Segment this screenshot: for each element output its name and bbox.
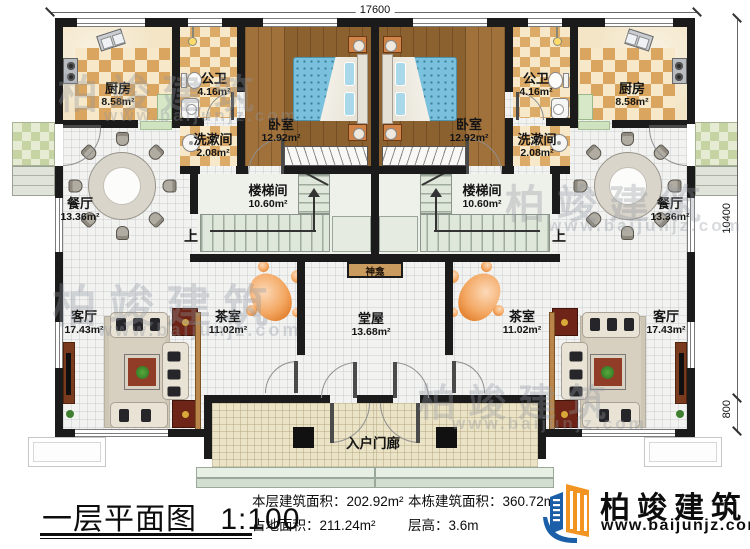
divider-screen bbox=[195, 312, 201, 430]
dining-chair bbox=[668, 180, 682, 193]
lamp-icon bbox=[385, 128, 397, 140]
wall bbox=[375, 27, 379, 262]
lamp-icon bbox=[353, 128, 365, 140]
porch-step bbox=[196, 467, 375, 478]
wall bbox=[297, 262, 305, 355]
dining-chair bbox=[574, 180, 588, 193]
window bbox=[687, 198, 695, 252]
toilet-icon bbox=[187, 72, 202, 89]
stair-landing bbox=[332, 216, 371, 252]
brand-website: www.baijunjz.com bbox=[601, 517, 750, 535]
door-opening bbox=[687, 124, 695, 166]
wall bbox=[375, 254, 560, 262]
wall bbox=[375, 395, 393, 403]
basin-bowl bbox=[553, 104, 564, 115]
cushion bbox=[168, 370, 181, 380]
wall bbox=[546, 118, 570, 126]
wall bbox=[237, 27, 245, 92]
nightstand bbox=[383, 124, 402, 141]
porch-step bbox=[196, 478, 375, 488]
stair-direction-line bbox=[313, 196, 315, 232]
burner-icon bbox=[67, 62, 75, 70]
plant-icon bbox=[676, 410, 684, 418]
pillow bbox=[395, 92, 406, 116]
door-leaf bbox=[452, 361, 456, 393]
pillow bbox=[344, 62, 355, 86]
dining-chair bbox=[622, 226, 635, 240]
cushion bbox=[119, 409, 129, 422]
wall bbox=[570, 27, 578, 128]
bath-valve-icon bbox=[188, 37, 197, 46]
tea-sculpture-dot bbox=[246, 305, 257, 316]
dining-chair bbox=[622, 132, 635, 146]
plan-title-text: 一层平面图 bbox=[42, 503, 197, 536]
brand-logo-icon bbox=[543, 481, 599, 543]
window bbox=[263, 18, 337, 27]
burner-icon bbox=[675, 73, 683, 81]
cushion bbox=[133, 318, 143, 331]
table-ornament bbox=[561, 319, 568, 326]
cushion bbox=[607, 318, 617, 331]
front-terrace bbox=[644, 437, 722, 467]
divider-screen bbox=[549, 312, 555, 430]
kitchen-rug bbox=[580, 48, 675, 120]
tea-sculpture-dot bbox=[493, 305, 504, 316]
dining-chair bbox=[162, 180, 176, 193]
kitchen-door-mat bbox=[578, 121, 610, 130]
sofa bbox=[561, 342, 588, 400]
wall bbox=[420, 395, 546, 403]
kitchen-appliance bbox=[578, 94, 593, 120]
door-leaf bbox=[330, 403, 334, 443]
tv-cabinet bbox=[675, 342, 687, 404]
plan-half bbox=[0, 0, 375, 490]
plant-icon bbox=[66, 410, 74, 418]
cushion bbox=[168, 387, 181, 397]
sofa bbox=[582, 312, 640, 338]
wall bbox=[357, 395, 375, 403]
plan-half-mirrored bbox=[375, 0, 750, 490]
front-terrace bbox=[28, 437, 106, 467]
dining-chair bbox=[116, 132, 129, 146]
stair-lower-flight bbox=[200, 214, 330, 252]
door-leaf bbox=[63, 125, 101, 128]
sofa bbox=[162, 342, 189, 400]
toilet-icon bbox=[548, 72, 563, 89]
door-opening bbox=[55, 124, 63, 166]
tv-icon bbox=[679, 353, 684, 395]
door-leaf bbox=[353, 362, 357, 398]
plant-icon bbox=[601, 366, 614, 379]
cushion bbox=[570, 352, 583, 362]
tea-sculpture-dot bbox=[258, 261, 269, 272]
cushion bbox=[168, 352, 181, 362]
stove-icon bbox=[63, 58, 78, 84]
table-ornament bbox=[561, 411, 568, 418]
wall bbox=[538, 395, 546, 459]
wall bbox=[550, 166, 570, 174]
side-steps bbox=[12, 166, 55, 196]
dining-table-top bbox=[103, 167, 141, 205]
pillow bbox=[395, 62, 406, 86]
porch-column bbox=[436, 427, 457, 448]
kitchen-door-mat bbox=[140, 121, 172, 130]
floor-plan-canvas: 厨房 8.58m² 厨房 8.58m² 公卫 4.16m² 公卫 4.16m² … bbox=[0, 0, 750, 549]
dining-chair bbox=[116, 226, 129, 240]
wash-basin-icon bbox=[182, 134, 200, 152]
stat-total-area: 本栋建筑面积：360.72m² bbox=[408, 490, 560, 510]
wall bbox=[190, 254, 375, 262]
window bbox=[55, 322, 63, 368]
end-table bbox=[552, 400, 578, 428]
kitchen-appliance bbox=[157, 94, 172, 120]
side-patio bbox=[12, 122, 55, 166]
cushion bbox=[590, 318, 600, 331]
door-leaf bbox=[231, 92, 234, 120]
table-ornament bbox=[182, 319, 189, 326]
nightstand bbox=[348, 36, 367, 53]
wash-basin-icon bbox=[550, 134, 568, 152]
tv-cabinet bbox=[63, 342, 75, 404]
plant-icon bbox=[136, 366, 149, 379]
sofa bbox=[110, 402, 168, 428]
cushion bbox=[624, 318, 634, 331]
window bbox=[75, 429, 168, 437]
window bbox=[528, 18, 562, 27]
wall bbox=[204, 395, 212, 459]
wall bbox=[236, 166, 248, 174]
window bbox=[605, 18, 673, 27]
basin-drain bbox=[557, 141, 561, 145]
nightstand bbox=[348, 124, 367, 141]
stove-icon bbox=[672, 58, 687, 84]
tea-sculpture-dot bbox=[481, 261, 492, 272]
stair-direction-line bbox=[434, 230, 540, 232]
basin-bowl bbox=[186, 104, 197, 115]
wall bbox=[445, 262, 453, 355]
wardrobe bbox=[284, 146, 368, 166]
tv-icon bbox=[66, 353, 71, 395]
porch-step bbox=[375, 467, 554, 478]
porch-step bbox=[375, 478, 554, 488]
stair-direction-line bbox=[435, 196, 437, 232]
stair-direction-line bbox=[210, 230, 316, 232]
end-table bbox=[552, 308, 578, 336]
wardrobe bbox=[382, 146, 466, 166]
window bbox=[413, 18, 487, 27]
dining-chair bbox=[68, 180, 82, 193]
cushion bbox=[570, 387, 583, 397]
stair-arrow-icon bbox=[308, 188, 320, 197]
coffee-table bbox=[591, 355, 625, 389]
wall bbox=[375, 166, 466, 174]
sofa bbox=[582, 402, 640, 428]
lamp-icon bbox=[353, 40, 365, 52]
stair-landing bbox=[379, 216, 418, 252]
stat-footprint-area: 占地面积：211.24m² bbox=[252, 514, 376, 534]
title-underline bbox=[40, 533, 252, 536]
window bbox=[687, 322, 695, 368]
wall bbox=[204, 395, 330, 403]
lamp-icon bbox=[385, 40, 397, 52]
pillow bbox=[344, 92, 355, 116]
cushion bbox=[141, 409, 151, 422]
basin-drain bbox=[189, 141, 193, 145]
bath-valve-icon bbox=[553, 37, 562, 46]
porch-column bbox=[293, 427, 314, 448]
title-underline-thin bbox=[40, 538, 252, 539]
table-ornament bbox=[182, 411, 189, 418]
side-patio bbox=[695, 122, 738, 166]
cushion bbox=[599, 409, 609, 422]
door-leaf bbox=[649, 125, 687, 128]
window bbox=[55, 198, 63, 252]
door-leaf bbox=[466, 138, 469, 174]
bath-basin-icon bbox=[551, 98, 569, 119]
nightstand bbox=[383, 36, 402, 53]
window bbox=[188, 18, 222, 27]
door-leaf bbox=[281, 138, 284, 174]
wall bbox=[190, 174, 198, 214]
door-leaf bbox=[393, 362, 397, 398]
cushion bbox=[150, 318, 160, 331]
dining-table-top bbox=[609, 167, 647, 205]
floor-plan bbox=[0, 0, 750, 490]
wall bbox=[284, 166, 375, 174]
sofa bbox=[110, 312, 168, 338]
coffee-table bbox=[125, 355, 159, 389]
bed-headboard bbox=[382, 54, 393, 124]
stair-arrow-icon bbox=[430, 188, 442, 197]
stat-floor-area: 本层建筑面积：202.92m² bbox=[252, 490, 404, 510]
side-steps bbox=[695, 166, 738, 196]
bath-basin-icon bbox=[181, 98, 199, 119]
door-leaf bbox=[516, 92, 519, 120]
toilet-tank bbox=[563, 73, 569, 88]
sink-basin bbox=[636, 36, 650, 50]
wall bbox=[552, 174, 560, 214]
burner-icon bbox=[675, 62, 683, 70]
door-leaf bbox=[294, 361, 298, 393]
door-leaf bbox=[416, 403, 420, 443]
wall bbox=[180, 166, 200, 174]
cushion bbox=[621, 409, 631, 422]
bed-headboard bbox=[357, 54, 368, 124]
burner-icon bbox=[67, 73, 75, 81]
wall bbox=[502, 166, 514, 174]
cushion bbox=[570, 370, 583, 380]
stat-floor-height: 层高：3.6m bbox=[408, 514, 479, 534]
cushion bbox=[116, 318, 126, 331]
wall bbox=[172, 27, 180, 128]
kitchen-rug bbox=[75, 48, 170, 120]
window bbox=[582, 429, 675, 437]
wall bbox=[180, 118, 204, 126]
stair-lower-flight bbox=[420, 214, 550, 252]
window bbox=[77, 18, 145, 27]
wall bbox=[505, 27, 513, 92]
